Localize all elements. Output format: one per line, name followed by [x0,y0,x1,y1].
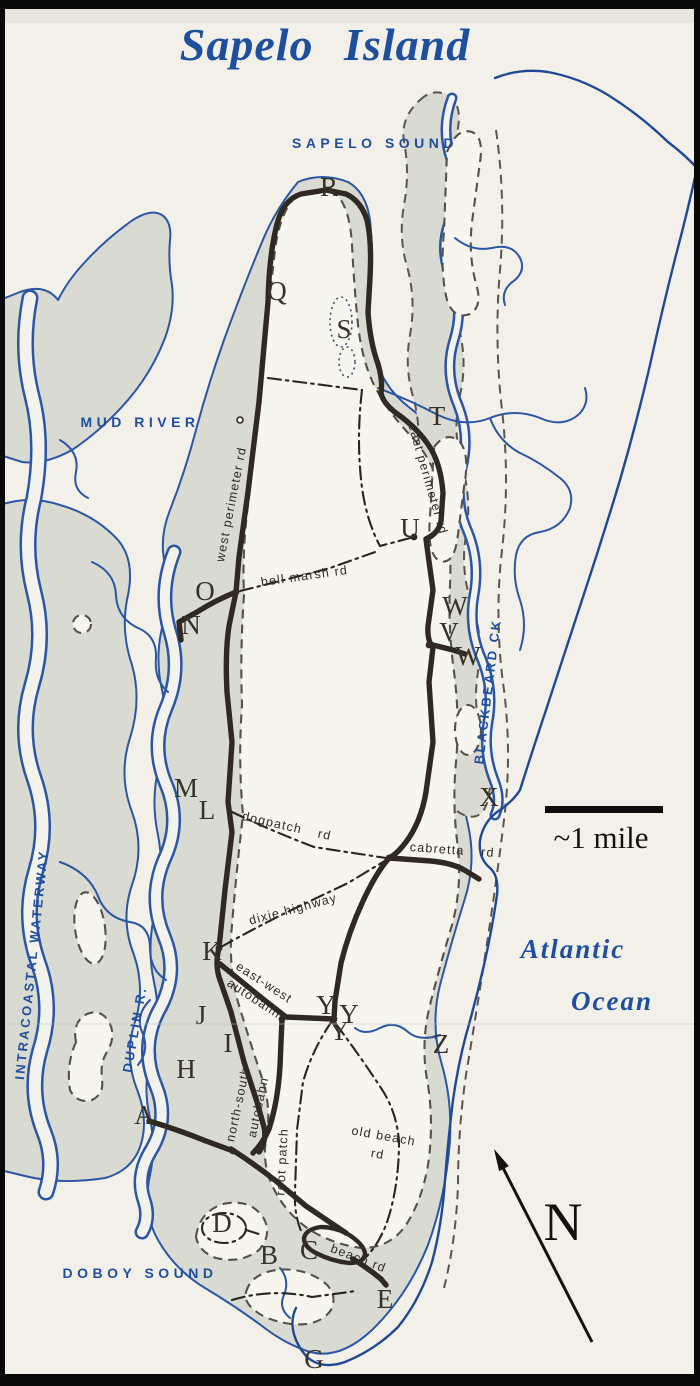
frame-top [0,0,700,9]
point-n: N [181,610,201,640]
point-u: U [400,513,420,543]
point-i: I [224,1028,233,1058]
label-ocean: Ocean [571,986,653,1016]
point-w2: W [455,641,481,671]
label-mud-river: MUD RIVER [80,414,199,430]
point-c: C [300,1235,318,1265]
scale-bar-label: ~1 mile [553,820,648,855]
point-z: Z [433,1029,450,1059]
point-l: L [199,795,216,825]
point-a: A [134,1100,154,1130]
label-doboy-sound: DOBOY SOUND [62,1265,217,1281]
sapelo-island-map: Sapelo Island SAPELO SOUND MUD RIVER INT… [0,0,700,1386]
junction-ns [279,1016,286,1023]
label-sapelo-sound: SAPELO SOUND [292,135,458,151]
frame-right [694,0,700,1386]
point-x: X [479,782,499,812]
frame-left [0,0,5,1386]
point-j: J [196,1000,207,1030]
gate-marker [237,417,243,423]
point-g: G [304,1344,324,1374]
junction-cabretta [386,855,393,862]
scale-bar-line [545,806,663,813]
junction-a [230,1148,237,1155]
point-t: T [429,401,446,431]
point-b: B [260,1240,278,1270]
point-d: D [212,1208,232,1238]
map-title: Sapelo Island [180,19,470,70]
point-y3: Y [329,1016,349,1046]
point-s: S [336,314,351,344]
point-q: Q [267,276,287,306]
point-o: O [195,576,215,606]
frame-bottom [0,1374,700,1386]
label-old-beach-rd: rd [370,1146,386,1162]
point-m: M [174,773,198,803]
point-r: R [320,172,338,202]
point-h: H [176,1054,196,1084]
junction-v [426,642,433,649]
point-k: K [202,936,222,966]
label-atlantic: Atlantic [519,934,626,964]
point-e: E [377,1284,394,1314]
north-label: N [544,1192,583,1252]
junction-o [233,589,240,596]
marsh-upland-dot [73,615,91,633]
